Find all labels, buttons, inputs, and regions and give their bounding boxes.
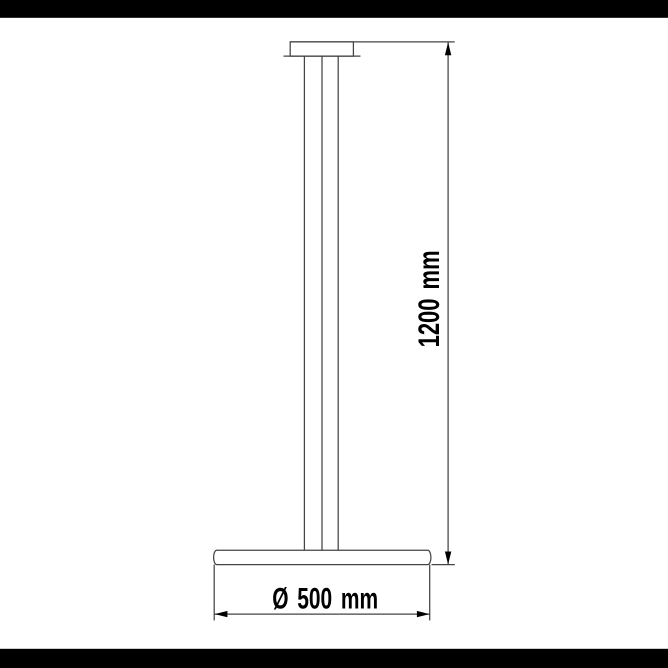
svg-text:1200 mm: 1200 mm <box>412 250 446 347</box>
svg-text:Ø 500 mm: Ø 500 mm <box>272 583 378 615</box>
